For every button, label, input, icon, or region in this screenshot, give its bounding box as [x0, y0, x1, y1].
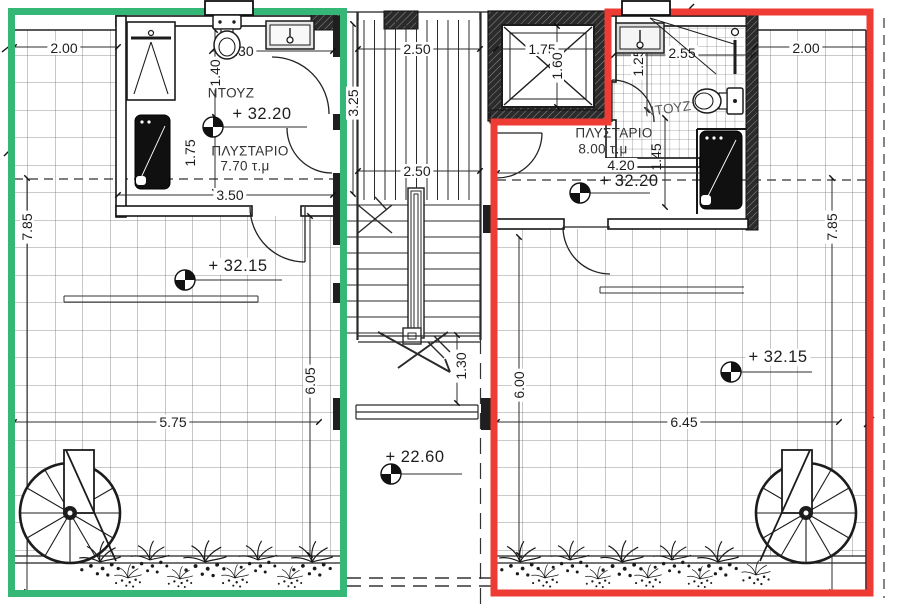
plan-fixtures [0, 0, 900, 613]
floor-plan: 2.00 2.30 1.40 1.75 ΝΤΟΥΖ + 32.20 ΠΛΥΣΤΑ… [0, 0, 900, 613]
sink-icon [266, 21, 314, 49]
sink-icon [616, 23, 664, 53]
washing-machine-icon [700, 131, 742, 209]
spiral-staircase-icon [756, 450, 856, 563]
toilet-icon [213, 15, 241, 59]
planter-plants [79, 540, 770, 587]
toilet-icon [693, 88, 743, 114]
spiral-staircase-icon [20, 450, 120, 563]
washing-machine-icon [135, 115, 170, 189]
shower-icon [127, 22, 175, 100]
